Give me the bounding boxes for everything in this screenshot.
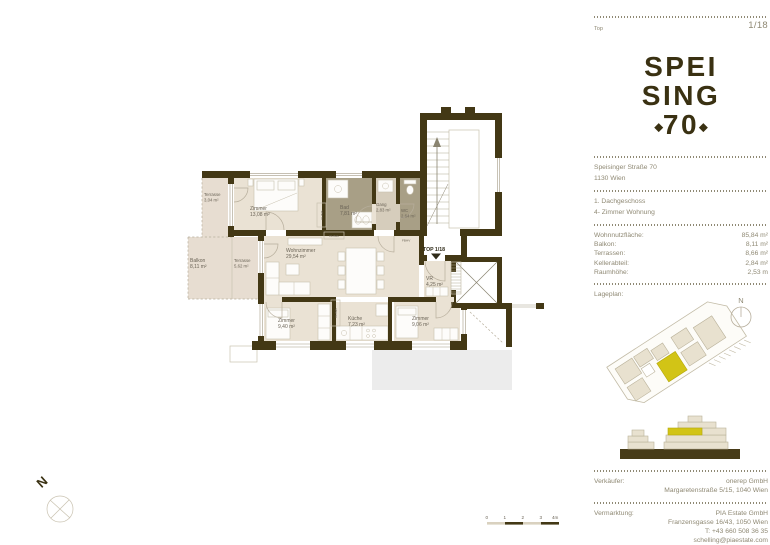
klima-label-vertical-1: KLIMA — [320, 209, 324, 219]
metric-label: Balkon: — [594, 240, 616, 249]
logo-number: 70 — [663, 109, 699, 140]
highlighted-floor — [668, 428, 702, 435]
divider — [594, 224, 768, 226]
logo-line-3: ◆70◆ — [594, 110, 768, 142]
contact-label: Vermarktung: — [594, 509, 634, 519]
floor-plan: KLIMA KLIMA KLIMA FBHV TOP 1/18 Terrasse… — [0, 0, 580, 545]
klima-label-horizontal: KLIMA — [329, 234, 339, 238]
stairwell — [427, 130, 479, 228]
room-label-area: 7,23 m² — [348, 322, 365, 328]
info-panel: Top 1/18 SPEI SING ◆70◆ Speisinger Straß… — [594, 13, 768, 545]
room-label-area: 7,81 m² — [340, 211, 357, 217]
metric-label: Wohnnutzfläche: — [594, 231, 644, 240]
page-number: 1/18 — [748, 19, 768, 34]
contact-verkaeufer: Verkäufer: onerep GmbH Margaretenstraße … — [594, 475, 768, 498]
divider — [594, 470, 768, 472]
room-label-area: 2,83 m² — [376, 208, 391, 213]
scale-tick: 0 — [486, 515, 489, 520]
logo-line-1: SPEI — [594, 52, 768, 81]
north-letter: N — [34, 473, 51, 490]
logo-diamond-icon: ◆ — [654, 121, 662, 133]
room-label-area: 29,54 m² — [286, 254, 306, 260]
room-label-area: 13,08 m² — [250, 212, 270, 218]
room-label-area: 4,25 m² — [426, 282, 443, 288]
contact-email: schelling@piaestate.com — [594, 536, 768, 545]
room-label-name: WC — [401, 208, 408, 213]
plan-sheet: KLIMA KLIMA KLIMA FBHV TOP 1/18 Terrasse… — [0, 0, 770, 545]
scale-tick: 3 — [540, 515, 543, 520]
metric-value: 85,84 m² — [742, 231, 768, 240]
metric-row: Terrassen:8,66 m² — [594, 249, 768, 258]
room-label-area: 3,04 m² — [204, 198, 219, 203]
north-compass-icon: N — [34, 473, 73, 522]
room-label-area: 9,06 m² — [412, 322, 429, 328]
metric-label: Terrassen: — [594, 249, 625, 258]
metric-value: 2,53 m — [748, 268, 768, 277]
divider — [594, 16, 768, 18]
contact-vermarktung: Vermarktung: PIA Estate GmbH Franzensgas… — [594, 507, 768, 545]
north-letter: N — [738, 296, 743, 305]
entrance-label: TOP 1/18 — [423, 247, 445, 253]
contact-line: Franzensgasse 16/43, 1050 Wien — [594, 518, 768, 527]
address-city: 1130 Wien — [594, 174, 768, 184]
room-label-area: 9,40 m² — [278, 324, 295, 330]
address-street: Speisinger Straße 70 — [594, 163, 768, 173]
room-label-name: Terrasse — [234, 258, 251, 263]
scale-bar: 0 1 2 3 4m — [486, 515, 560, 525]
room-label-area: 2,64 m² — [401, 214, 416, 219]
metric-value: 8,66 m² — [745, 249, 768, 258]
contact-line: T: +43 660 508 36 35 — [594, 527, 768, 536]
divider — [594, 502, 768, 504]
lageplan-section: Lageplan: N — [594, 288, 768, 467]
metric-label: Kellerabteil: — [594, 259, 629, 268]
metrics-block: Wohnnutzfläche:85,84 m² Balkon:8,11 m² T… — [594, 229, 768, 280]
contact-label: Verkäufer: — [594, 477, 624, 487]
divider — [594, 190, 768, 192]
elevator — [456, 262, 497, 303]
lageplan-north-icon: N — [728, 294, 754, 330]
logo-diamond-icon: ◆ — [699, 121, 707, 133]
metric-row: Raumhöhe:2,53 m — [594, 268, 768, 277]
metric-row: Balkon:8,11 m² — [594, 240, 768, 249]
metric-value: 2,84 m² — [745, 259, 768, 268]
contact-line: Margaretenstraße 5/15, 1040 Wien — [594, 486, 768, 495]
unit-floor: 1. Dachgeschoss — [594, 197, 768, 207]
unit-type: 4- Zimmer Wohnung — [594, 208, 768, 218]
room-label-area: 5,62 m² — [234, 264, 249, 269]
logo-line-2: SING — [594, 81, 768, 110]
top-label: Top — [594, 25, 603, 34]
scale-tick: 2 — [522, 515, 525, 520]
room-label-name: Gang — [376, 202, 387, 207]
divider — [594, 156, 768, 158]
scale-tick: 1 — [504, 515, 507, 520]
metric-row: Wohnnutzfläche:85,84 m² — [594, 231, 768, 240]
unit-block: 1. Dachgeschoss 4- Zimmer Wohnung — [594, 195, 768, 221]
fbhv-label: FBHV — [402, 239, 411, 243]
room-label-area: 8,11 m² — [190, 264, 207, 270]
site-elevation — [594, 411, 768, 463]
scale-tick: 4m — [552, 515, 559, 520]
metric-row: Kellerabteil:2,84 m² — [594, 259, 768, 268]
address-block: Speisinger Straße 70 1130 Wien — [594, 161, 768, 187]
divider — [594, 283, 768, 285]
metric-label: Raumhöhe: — [594, 268, 629, 277]
klima-label-vertical-2: KLIMA — [334, 307, 338, 317]
room-label-name: Terrasse — [204, 192, 221, 197]
metric-value: 8,11 m² — [746, 240, 768, 249]
project-logo: SPEI SING ◆70◆ — [594, 52, 768, 142]
